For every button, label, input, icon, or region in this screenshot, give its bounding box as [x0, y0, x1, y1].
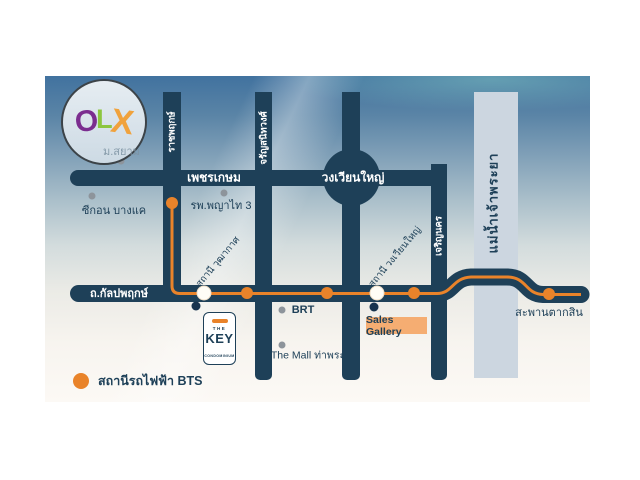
- key-logo-bar: [212, 319, 228, 323]
- legend-bts-label: สถานีรถไฟฟ้า BTS: [98, 371, 203, 391]
- bts-station-dot: [166, 197, 178, 209]
- river-label: แม่น้ำเจ้าพระยา: [483, 153, 504, 254]
- the-key-logo: THE KEY CONDOMINIUM: [203, 312, 236, 365]
- place-label-mall: The Mall ท่าพระ: [271, 347, 345, 364]
- place-label-seacon: ซีกอน บางแค: [82, 201, 146, 219]
- station-label-saphan-taksin: สะพานตากสิน: [515, 303, 583, 321]
- key-logo-sub: CONDOMINIUM: [204, 354, 234, 358]
- poi-dot-sales-gallery: [370, 303, 379, 312]
- legend-bts: สถานีรถไฟฟ้า BTS: [73, 371, 203, 391]
- poi-dot-brt: [279, 307, 286, 314]
- poi-dot-the-key: [192, 302, 201, 311]
- sales-gallery-tag: Sales Gallery: [366, 317, 427, 334]
- olx-letter-x: X: [108, 101, 136, 143]
- road-label-charansanitwong: จรัญสนิทวงศ์: [257, 111, 272, 164]
- bts-station-dot: [408, 287, 420, 299]
- location-map: เพชรเกษม วงเวียนใหญ่ ถ.กัลปพฤกษ์ ราชพฤกษ…: [45, 76, 590, 402]
- place-label-brt: BRT: [292, 304, 315, 316]
- road-label-kanlapaphruek: ถ.กัลปพฤกษ์: [90, 284, 148, 302]
- station-label-wongwianyai: สถานี วงเวียนใหญ่: [365, 223, 425, 291]
- poi-dot-seacon: [89, 193, 96, 200]
- road-label-phetkasem: เพชรเกษม: [187, 169, 241, 188]
- road-charoen-nakhon: [431, 164, 447, 380]
- olx-watermark-text: ม.สยาม: [103, 142, 140, 160]
- bts-station-dot: [543, 288, 555, 300]
- sales-gallery-label: Sales Gallery: [366, 314, 427, 338]
- road-label-ratchaphruek: ราชพฤกษ์: [165, 112, 180, 153]
- road-label-wongwianyai: วงเวียนใหญ่: [322, 169, 385, 188]
- listing-photo-map: { "logo": { "o": "O", "l": "L", "x": "X"…: [0, 0, 640, 480]
- road-label-charoen-nakhon: เจริญนคร: [432, 216, 447, 256]
- bts-station-dot: [241, 287, 253, 299]
- road-phetkasem: [70, 170, 447, 186]
- road-wongwianyai-vertical: [342, 92, 360, 380]
- place-label-phyathai: รพ.พญาไท 3: [191, 196, 252, 214]
- bts-station-dot: [321, 287, 333, 299]
- station-label-wutthakat: สถานี วุฒากาศ: [192, 233, 244, 290]
- key-logo-name: KEY: [205, 332, 233, 345]
- legend-bts-dot: [73, 373, 89, 389]
